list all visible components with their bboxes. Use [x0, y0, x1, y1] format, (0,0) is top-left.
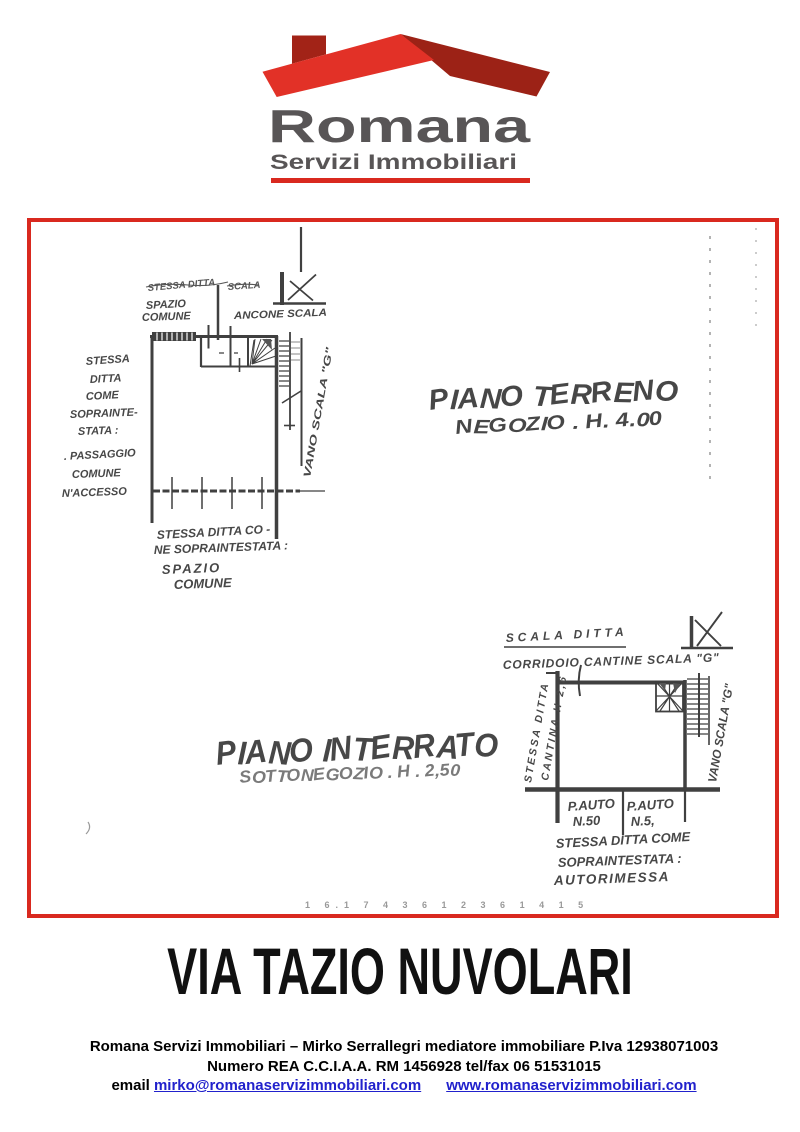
svg-text:Romana: Romana [268, 100, 531, 152]
svg-text:Servizi Immobiliari: Servizi Immobiliari [270, 151, 517, 174]
